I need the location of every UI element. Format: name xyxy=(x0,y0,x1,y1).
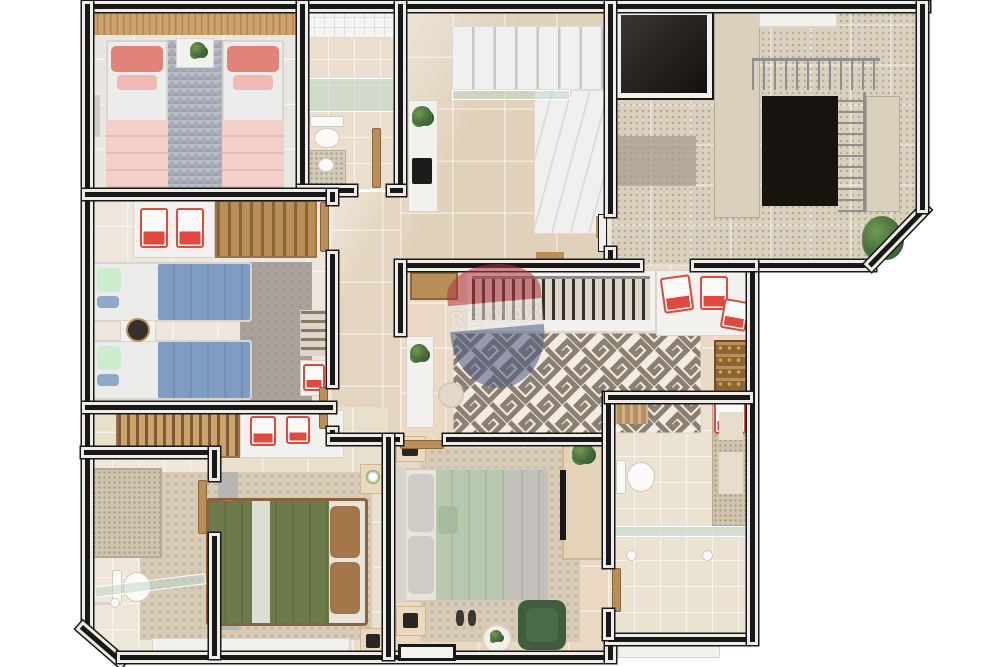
balloon-bottom-blue xyxy=(450,324,549,392)
bench xyxy=(152,638,350,652)
granite-shower-column xyxy=(90,468,162,558)
bedroom-door xyxy=(400,440,444,449)
remax-watermark: RE/MAX xyxy=(445,260,550,396)
tv-screen xyxy=(560,470,566,540)
bolster-blue xyxy=(97,374,119,386)
coffee-machine xyxy=(412,158,432,184)
wall-segment xyxy=(398,263,403,333)
slipper xyxy=(468,610,476,626)
pillow-gray xyxy=(408,536,434,594)
plant-icon xyxy=(410,344,428,362)
wall-segment xyxy=(85,4,90,628)
slipper xyxy=(456,610,464,626)
duvet-blue xyxy=(158,264,250,320)
pillow-gray xyxy=(408,474,434,532)
shower-head-icon xyxy=(626,550,637,561)
towel-rack xyxy=(614,402,648,424)
round-side-table xyxy=(126,318,150,342)
wood-slat-accent-wall xyxy=(92,9,298,35)
pillow-mint xyxy=(97,346,121,370)
stair-void xyxy=(762,96,838,206)
toilet-tank xyxy=(616,460,626,494)
glass-balustrade xyxy=(452,90,570,100)
wall-segment xyxy=(386,437,391,657)
blanket-pale-pink xyxy=(106,120,168,190)
wall-segment xyxy=(212,536,217,656)
wall-shelf xyxy=(92,95,100,137)
toilet-icon xyxy=(314,128,340,148)
entry-canopy xyxy=(618,642,720,658)
wall-segment xyxy=(85,4,927,9)
shoe-shelf xyxy=(714,340,750,398)
plant-icon xyxy=(572,442,594,464)
stair-flight-lower xyxy=(534,90,608,234)
wall-segment xyxy=(606,612,611,637)
book-dark xyxy=(403,613,418,628)
throw-gray xyxy=(506,470,548,600)
blanket-pale-pink xyxy=(222,120,284,190)
red-suitcase xyxy=(660,274,695,314)
pillow-brown xyxy=(330,506,360,558)
bed-runner xyxy=(252,501,270,623)
stair-flight-granite-left xyxy=(714,10,760,218)
wall-segment xyxy=(390,188,403,193)
wardrobe-nook xyxy=(300,310,328,356)
bathroom-door xyxy=(198,480,207,534)
red-box xyxy=(286,416,310,444)
wall-segment xyxy=(85,405,333,410)
shower-head-icon xyxy=(110,598,120,608)
red-box xyxy=(250,416,276,446)
shower-glass xyxy=(308,78,396,112)
red-suitcase xyxy=(176,208,204,248)
bathroom-door xyxy=(612,568,621,612)
glass-partition xyxy=(614,526,750,537)
pillow-pink-small xyxy=(117,75,157,90)
armchair-seat xyxy=(526,608,558,642)
wall-segment xyxy=(300,4,305,192)
shower-head-icon xyxy=(702,550,713,561)
wall-segment xyxy=(608,637,755,642)
wall-segment xyxy=(212,450,217,478)
wood-cubby-shelf xyxy=(215,200,317,258)
pillow-mint xyxy=(97,268,121,292)
plant-icon xyxy=(190,42,206,58)
wall-segment xyxy=(84,450,217,455)
wall-shelf-wood xyxy=(536,252,564,263)
wall-segment xyxy=(120,655,612,660)
wall-segment xyxy=(750,266,755,642)
red-suitcase xyxy=(720,298,751,332)
book-dark xyxy=(366,634,380,648)
tiled-wall xyxy=(304,8,398,38)
railing-right xyxy=(838,92,866,212)
flowers-white xyxy=(366,470,380,484)
wall-segment xyxy=(694,263,755,268)
toilet-tank xyxy=(310,116,344,127)
wall-segment xyxy=(608,395,750,400)
pillow-brown xyxy=(330,562,360,614)
duvet-blue xyxy=(158,342,250,398)
railing-top xyxy=(752,58,880,90)
wall-segment xyxy=(920,4,925,210)
wall-segment xyxy=(753,263,873,268)
floor-plan: RE/MAX xyxy=(0,0,1000,667)
wall-segment xyxy=(606,395,611,565)
bedroom-door xyxy=(320,202,329,252)
red-suitcase xyxy=(140,208,168,248)
niche xyxy=(719,452,743,494)
pillow-pink-small xyxy=(233,75,273,90)
stair-flight-upper xyxy=(452,26,608,90)
pillow-coral xyxy=(111,46,163,72)
toilet-icon xyxy=(627,462,655,492)
stair-flight-granite-right xyxy=(866,96,900,212)
wall-segment xyxy=(330,192,335,202)
elevator-void xyxy=(616,10,712,98)
under-stair-shadow xyxy=(616,136,696,186)
plant-icon xyxy=(490,630,502,642)
wall-segment xyxy=(398,4,403,192)
headboard xyxy=(396,468,406,602)
pillow-sage-small xyxy=(438,506,458,534)
unit-entry-door xyxy=(598,214,607,252)
wall-segment xyxy=(608,4,613,214)
wall-segment xyxy=(446,437,610,442)
sink xyxy=(318,158,334,172)
wall-segment xyxy=(330,254,335,385)
wall-segment xyxy=(85,192,335,197)
bolster-blue xyxy=(97,296,119,308)
entry-door xyxy=(398,644,456,661)
pillow-coral xyxy=(227,46,279,72)
niche xyxy=(719,412,743,440)
plant-icon xyxy=(412,106,432,126)
upper-landing xyxy=(758,6,838,28)
hall-corridor xyxy=(330,192,400,439)
bathroom-door xyxy=(372,128,381,188)
